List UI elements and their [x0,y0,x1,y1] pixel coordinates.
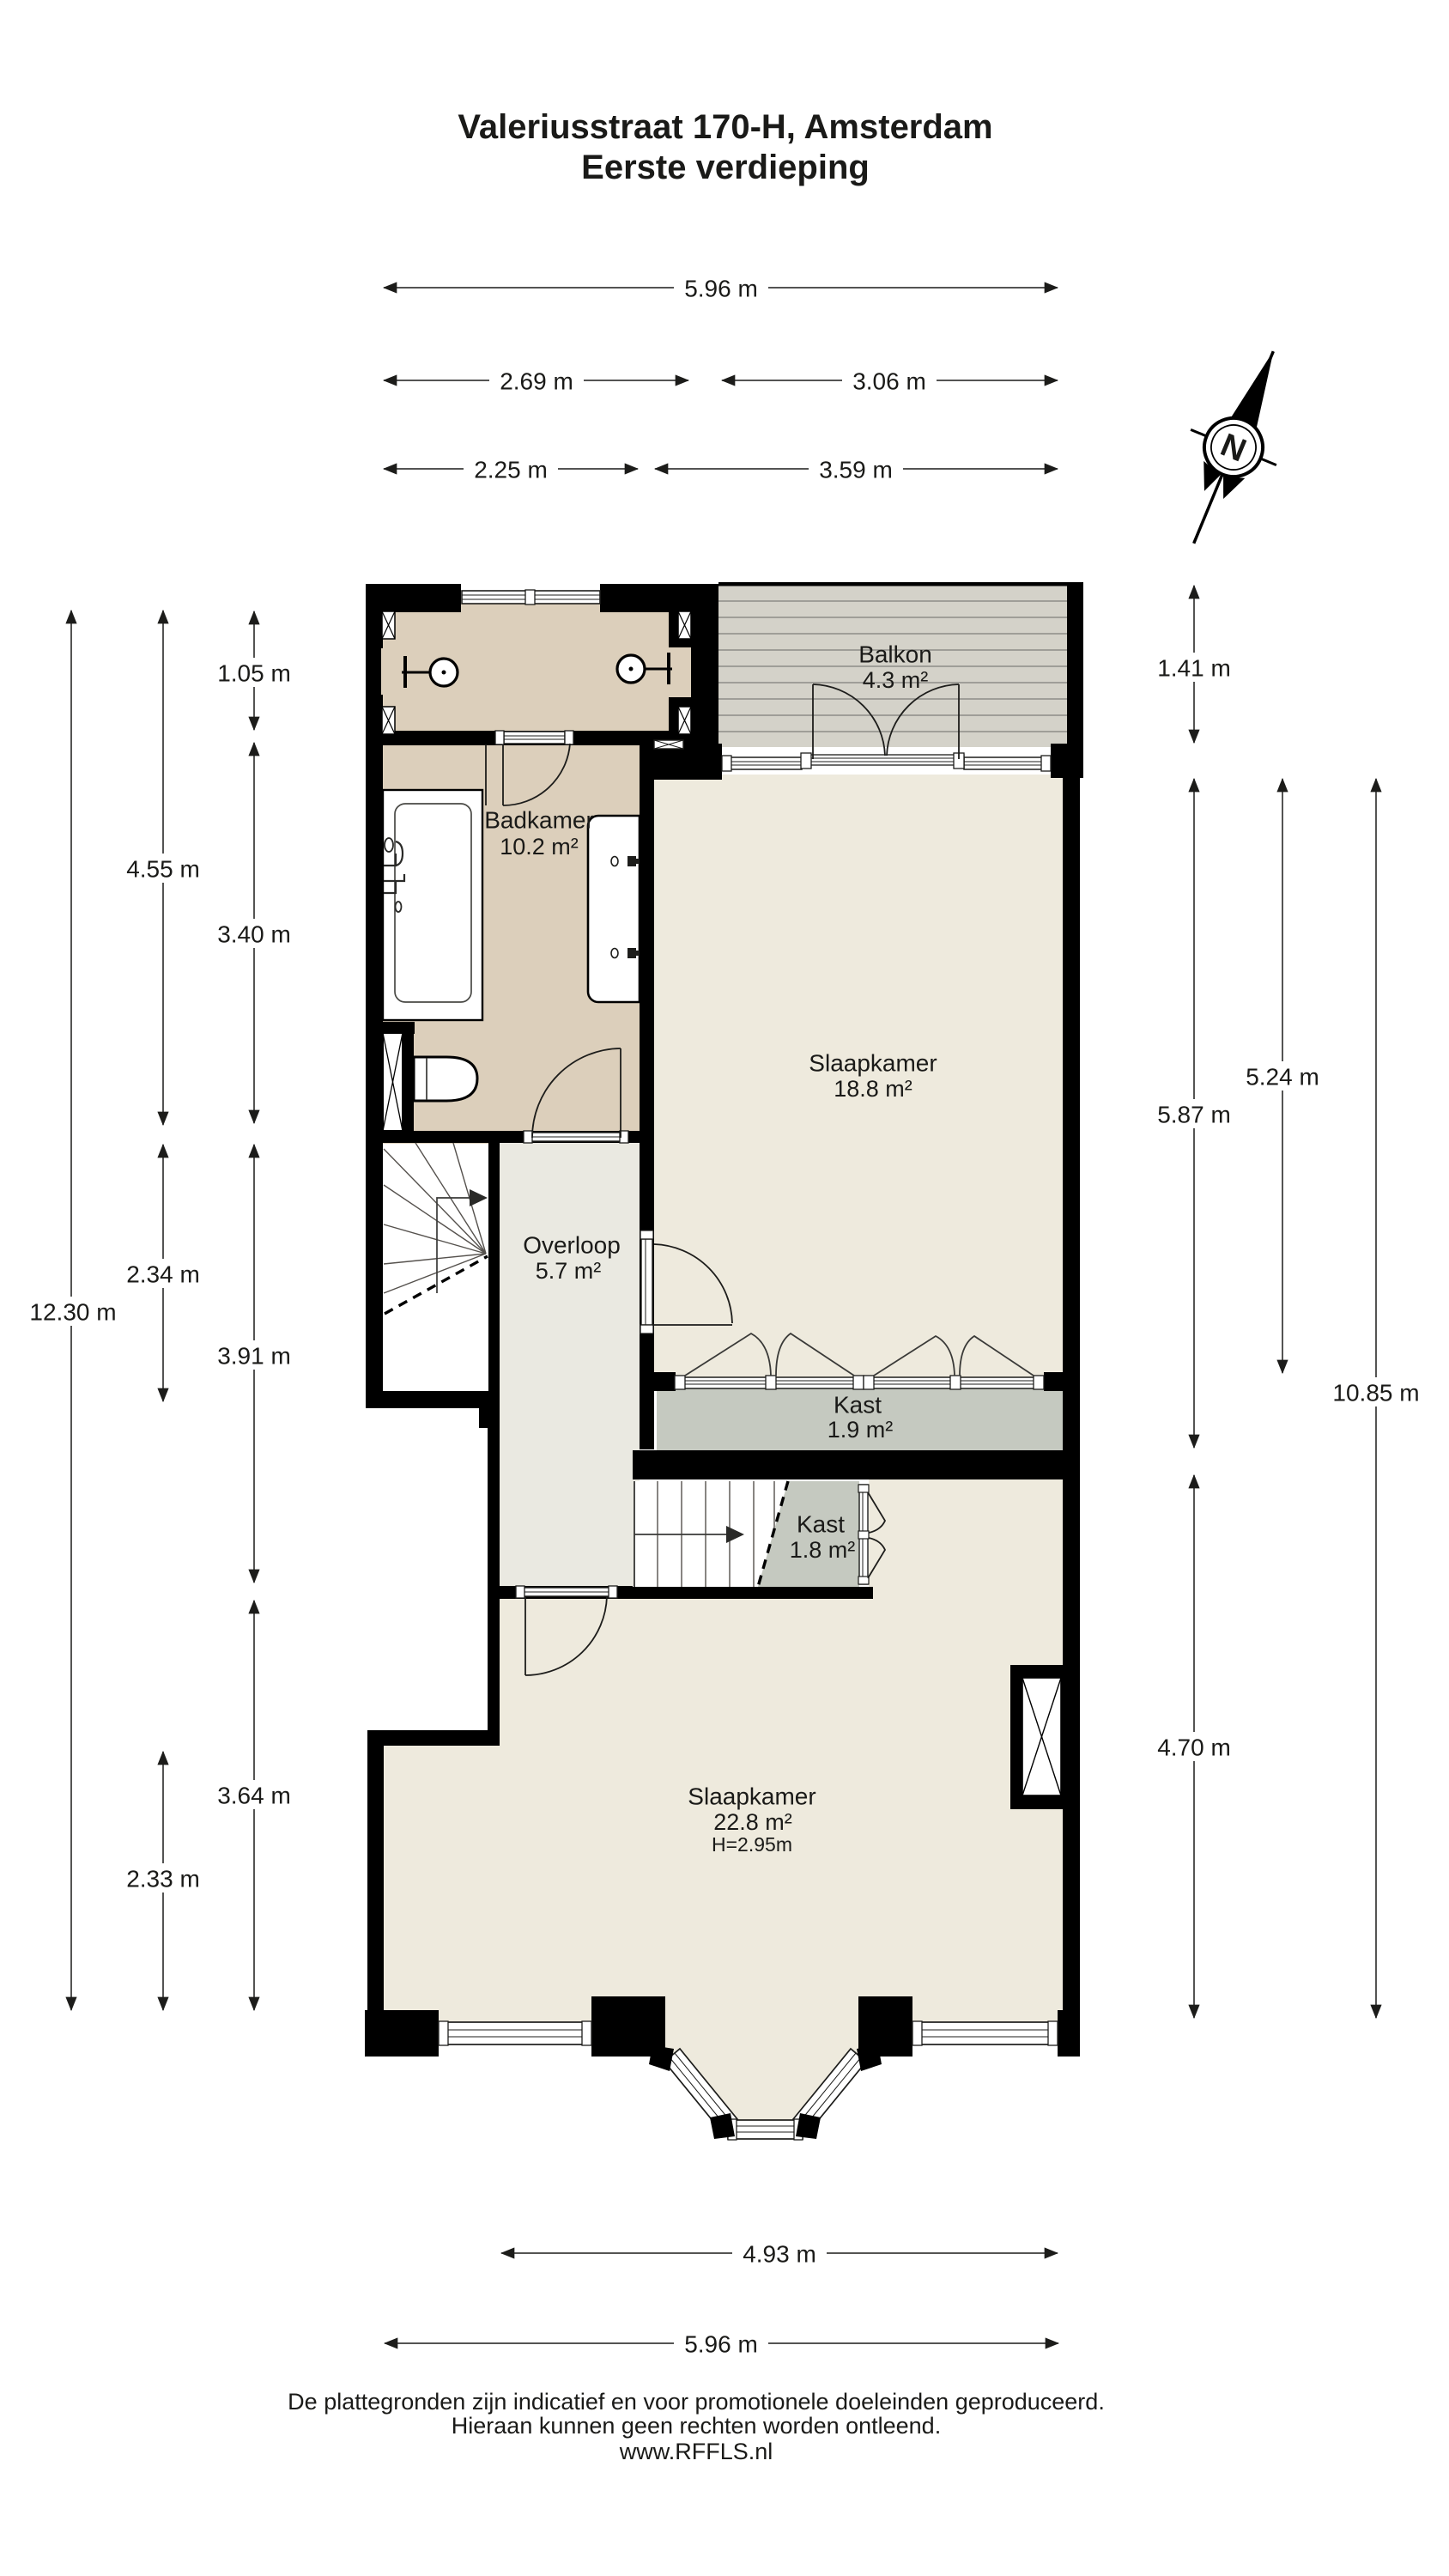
svg-text:10.85 m: 10.85 m [1332,1380,1419,1406]
svg-text:22.8 m²: 22.8 m² [713,1809,792,1835]
svg-text:Overloop: Overloop [523,1232,621,1259]
svg-text:5.7 m²: 5.7 m² [536,1258,602,1284]
svg-text:4.3 m²: 4.3 m² [863,667,929,693]
svg-text:10.2 m²: 10.2 m² [500,834,579,860]
svg-text:Badkamer: Badkamer [484,807,594,834]
svg-text:5.24 m: 5.24 m [1246,1064,1319,1091]
svg-text:3.91 m: 3.91 m [217,1343,291,1370]
svg-text:5.87 m: 5.87 m [1157,1102,1231,1128]
svg-text:Slaapkamer: Slaapkamer [688,1783,815,1810]
svg-text:1.41 m: 1.41 m [1157,655,1231,682]
svg-text:18.8 m²: 18.8 m² [834,1076,912,1102]
svg-text:3.59 m: 3.59 m [819,457,893,483]
svg-text:2.69 m: 2.69 m [500,368,573,395]
svg-text:4.55 m: 4.55 m [126,856,200,883]
svg-text:1.05 m: 1.05 m [217,660,291,687]
svg-text:Kast: Kast [834,1392,882,1419]
svg-text:De plattegronden zijn indicati: De plattegronden zijn indicatief en voor… [288,2389,1105,2415]
svg-text:www.RFFLS.nl: www.RFFLS.nl [619,2439,773,2464]
svg-text:Valeriusstraat 170-H, Amsterda: Valeriusstraat 170-H, Amsterdam [458,108,992,146]
svg-text:4.70 m: 4.70 m [1157,1735,1231,1761]
svg-text:5.96 m: 5.96 m [684,2331,758,2358]
svg-text:Balkon: Balkon [858,641,932,668]
svg-text:Eerste verdieping: Eerste verdieping [581,149,870,186]
svg-text:3.64 m: 3.64 m [217,1783,291,1809]
svg-text:2.34 m: 2.34 m [126,1261,200,1288]
svg-text:4.93 m: 4.93 m [743,2241,816,2268]
svg-text:Slaapkamer: Slaapkamer [809,1050,937,1077]
svg-text:1.8 m²: 1.8 m² [790,1537,856,1563]
svg-text:Kast: Kast [797,1511,845,1538]
svg-text:Hieraan kunnen geen rechten wo: Hieraan kunnen geen rechten worden ontle… [452,2413,941,2439]
svg-text:3.40 m: 3.40 m [217,921,291,948]
svg-text:5.96 m: 5.96 m [684,276,758,302]
svg-text:2.33 m: 2.33 m [126,1866,200,1893]
svg-text:12.30 m: 12.30 m [29,1299,116,1326]
svg-text:2.25 m: 2.25 m [474,457,548,483]
svg-text:1.9 m²: 1.9 m² [828,1417,894,1443]
svg-text:3.06 m: 3.06 m [852,368,926,395]
svg-text:H=2.95m: H=2.95m [712,1833,792,1856]
